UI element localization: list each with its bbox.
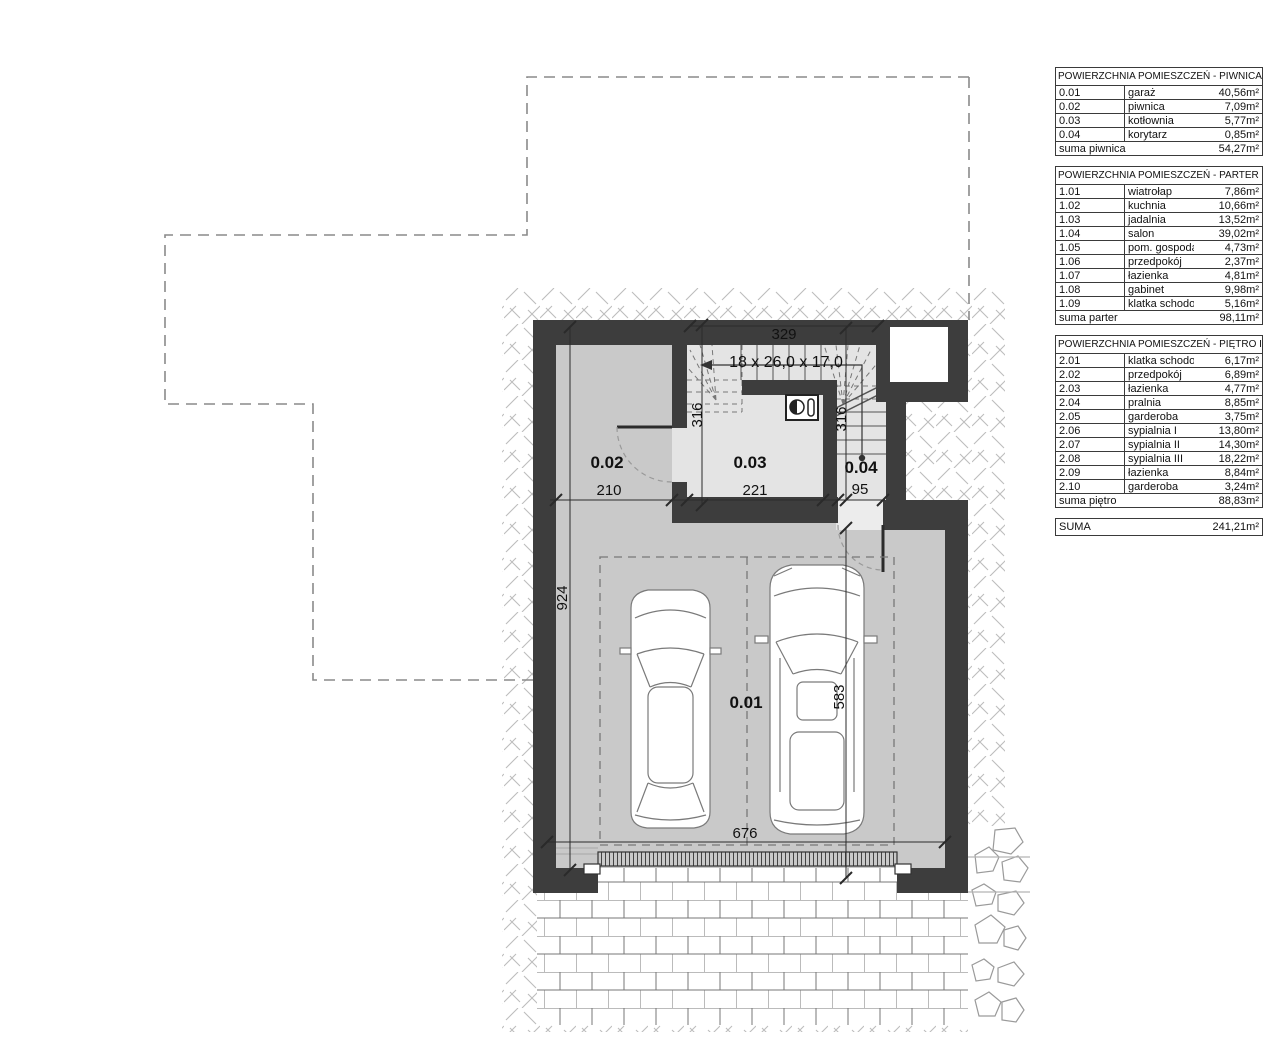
room-number: 2.09 — [1056, 466, 1125, 480]
room-name: sypialnia II — [1125, 438, 1194, 452]
room-number: 0.03 — [1056, 114, 1125, 128]
room-name: pom. gospodarcze — [1125, 241, 1194, 255]
room-number: 1.07 — [1056, 269, 1125, 283]
room-label-0-04: 0.04 — [844, 458, 878, 477]
table-footer-row: suma piwnica54,27m² — [1056, 142, 1263, 156]
area-table-pietro: POWIERZCHNIA POMIESZCZEŃ - PIĘTRO I2.01k… — [1055, 335, 1263, 508]
room-name: pralnia — [1125, 396, 1194, 410]
table-row: 1.08gabinet9,98m² — [1056, 283, 1263, 297]
table-row: 2.05garderoba3,75m² — [1056, 410, 1263, 424]
room-area: 5,16m² — [1194, 297, 1263, 311]
room-area: 10,66m² — [1194, 199, 1263, 213]
room-number: 1.05 — [1056, 241, 1125, 255]
dim-316-left: 316 — [689, 402, 706, 427]
room-area: 9,98m² — [1194, 283, 1263, 297]
room-name: sypialnia I — [1125, 424, 1194, 438]
room-area: 3,75m² — [1194, 410, 1263, 424]
dim-95: 95 — [852, 481, 869, 498]
table-header-row: POWIERZCHNIA POMIESZCZEŃ - PARTER — [1056, 167, 1263, 185]
table-row: 2.08sypialnia III18,22m² — [1056, 452, 1263, 466]
room-number: 1.01 — [1056, 185, 1125, 199]
room-area: 4,81m² — [1194, 269, 1263, 283]
window-shaft — [890, 327, 948, 382]
room-number: 2.03 — [1056, 382, 1125, 396]
room-area: 0,85m² — [1194, 128, 1263, 142]
area-table-piwnica: POWIERZCHNIA POMIESZCZEŃ - PIWNICA0.01ga… — [1055, 67, 1263, 156]
area-table-parter: POWIERZCHNIA POMIESZCZEŃ - PARTER1.01wia… — [1055, 166, 1263, 325]
table-row: 0.01garaż40,56m² — [1056, 86, 1263, 100]
dim-924: 924 — [554, 585, 571, 610]
table-title: POWIERZCHNIA POMIESZCZEŃ - PARTER — [1056, 167, 1263, 185]
room-area: 13,52m² — [1194, 213, 1263, 227]
room-name: salon — [1125, 227, 1194, 241]
dim-583: 583 — [831, 684, 848, 709]
room-area: 6,17m² — [1194, 354, 1263, 368]
room-name: garderoba — [1125, 480, 1194, 494]
car-suv-top-view — [755, 565, 877, 834]
table-row: 2.04pralnia8,85m² — [1056, 396, 1263, 410]
floor-plan-page: 329 18 x 26,0 x 17,0 316 316 210 221 95 … — [0, 0, 1278, 1043]
area-tables: POWIERZCHNIA POMIESZCZEŃ - PIWNICA0.01ga… — [1055, 67, 1263, 546]
room-area: 5,77m² — [1194, 114, 1263, 128]
stone-paving — [968, 826, 1030, 1032]
room-number: 0.01 — [1056, 86, 1125, 100]
table-row: 0.02piwnica7,09m² — [1056, 100, 1263, 114]
room-area: 4,73m² — [1194, 241, 1263, 255]
table-title: POWIERZCHNIA POMIESZCZEŃ - PIĘTRO I — [1056, 336, 1263, 354]
table-footer-row: suma parter98,11m² — [1056, 311, 1263, 325]
dim-210: 210 — [596, 482, 621, 499]
room-area: 8,84m² — [1194, 466, 1263, 480]
room-name: piwnica — [1125, 100, 1194, 114]
room-name: jadalnia — [1125, 213, 1194, 227]
room-name: przedpokój — [1125, 368, 1194, 382]
room-number: 2.07 — [1056, 438, 1125, 452]
table-row: 2.07sypialnia II14,30m² — [1056, 438, 1263, 452]
room-area: 18,22m² — [1194, 452, 1263, 466]
table-row: SUMA 241,21m² — [1056, 519, 1263, 536]
room-number: 2.04 — [1056, 396, 1125, 410]
room-number: 2.05 — [1056, 410, 1125, 424]
table-header-row: POWIERZCHNIA POMIESZCZEŃ - PIWNICA — [1056, 68, 1263, 86]
room-number: 1.08 — [1056, 283, 1125, 297]
room-number: 2.08 — [1056, 452, 1125, 466]
room-area: 39,02m² — [1194, 227, 1263, 241]
room-area: 13,80m² — [1194, 424, 1263, 438]
room-name: sypialnia III — [1125, 452, 1194, 466]
table-row: 2.06sypialnia I13,80m² — [1056, 424, 1263, 438]
room-number: 0.04 — [1056, 128, 1125, 142]
table-row: 1.04salon39,02m² — [1056, 227, 1263, 241]
room-name: łazienka — [1125, 382, 1194, 396]
sum-label: suma piwnica — [1056, 142, 1194, 156]
room-label-0-02: 0.02 — [590, 453, 623, 472]
room-area: 7,09m² — [1194, 100, 1263, 114]
room-number: 1.06 — [1056, 255, 1125, 269]
table-footer-row: suma piętro88,83m² — [1056, 494, 1263, 508]
room-area: 14,30m² — [1194, 438, 1263, 452]
room-number: 2.06 — [1056, 424, 1125, 438]
car-sedan-top-view — [620, 590, 721, 828]
sum-label: suma piętro — [1056, 494, 1194, 508]
table-row: 1.01wiatrołap7,86m² — [1056, 185, 1263, 199]
room-area: 7,86m² — [1194, 185, 1263, 199]
room-name: gabinet — [1125, 283, 1194, 297]
stair-spec-label: 18 x 26,0 x 17,0 — [729, 354, 843, 371]
room-name: klatka schodowa — [1125, 354, 1194, 368]
room-area: 2,37m² — [1194, 255, 1263, 269]
table-row: 1.03jadalnia13,52m² — [1056, 213, 1263, 227]
room-number: 1.03 — [1056, 213, 1125, 227]
table-header-row: POWIERZCHNIA POMIESZCZEŃ - PIĘTRO I — [1056, 336, 1263, 354]
room-name: klatka schodowa — [1125, 297, 1194, 311]
room-area: 6,89m² — [1194, 368, 1263, 382]
dim-221: 221 — [742, 482, 767, 499]
table-title: POWIERZCHNIA POMIESZCZEŃ - PIWNICA — [1056, 68, 1263, 86]
table-row: 2.10garderoba3,24m² — [1056, 480, 1263, 494]
table-row: 2.02przedpokój6,89m² — [1056, 368, 1263, 382]
room-number: 0.02 — [1056, 100, 1125, 114]
room-name: garderoba — [1125, 410, 1194, 424]
room-number: 2.10 — [1056, 480, 1125, 494]
room-name: garaż — [1125, 86, 1194, 100]
room-name: wiatrołap — [1125, 185, 1194, 199]
boiler-icon — [786, 395, 818, 420]
room-label-0-03: 0.03 — [733, 453, 766, 472]
table-row: 2.03łazienka4,77m² — [1056, 382, 1263, 396]
room-name: korytarz — [1125, 128, 1194, 142]
table-row: 1.02kuchnia10,66m² — [1056, 199, 1263, 213]
room-area: 4,77m² — [1194, 382, 1263, 396]
room-name: przedpokój — [1125, 255, 1194, 269]
floor-plan-drawing: 329 18 x 26,0 x 17,0 316 316 210 221 95 … — [0, 0, 1050, 1043]
table-row: 2.01klatka schodowa6,17m² — [1056, 354, 1263, 368]
sum-value: 98,11m² — [1194, 311, 1263, 325]
room-number: 1.09 — [1056, 297, 1125, 311]
room-number: 2.02 — [1056, 368, 1125, 382]
table-row: 1.05pom. gospodarcze4,73m² — [1056, 241, 1263, 255]
room-number: 1.02 — [1056, 199, 1125, 213]
total-value: 241,21m² — [1198, 519, 1263, 536]
room-name: kuchnia — [1125, 199, 1194, 213]
dim-316-right: 316 — [833, 406, 850, 431]
door-opening-0-02 — [672, 428, 687, 482]
room-area: 3,24m² — [1194, 480, 1263, 494]
sum-value: 88,83m² — [1194, 494, 1263, 508]
table-row: 0.04korytarz0,85m² — [1056, 128, 1263, 142]
room-area: 40,56m² — [1194, 86, 1263, 100]
room-name: kotłownia — [1125, 114, 1194, 128]
table-row: 1.09klatka schodowa5,16m² — [1056, 297, 1263, 311]
total-label: SUMA — [1056, 519, 1199, 536]
dim-676: 676 — [732, 825, 757, 842]
room-label-0-01: 0.01 — [729, 693, 762, 712]
room-number: 2.01 — [1056, 354, 1125, 368]
room-name: łazienka — [1125, 466, 1194, 480]
sum-value: 54,27m² — [1194, 142, 1263, 156]
table-row: 2.09łazienka8,84m² — [1056, 466, 1263, 480]
sum-label: suma parter — [1056, 311, 1194, 325]
room-number: 1.04 — [1056, 227, 1125, 241]
table-row: 1.06przedpokój2,37m² — [1056, 255, 1263, 269]
total-area-table: SUMA 241,21m² — [1055, 518, 1263, 536]
area-tables-root: POWIERZCHNIA POMIESZCZEŃ - PIWNICA0.01ga… — [1055, 67, 1263, 508]
dim-329: 329 — [771, 326, 796, 343]
room-name: łazienka — [1125, 269, 1194, 283]
table-row: 1.07łazienka4,81m² — [1056, 269, 1263, 283]
table-row: 0.03kotłownia5,77m² — [1056, 114, 1263, 128]
room-area: 8,85m² — [1194, 396, 1263, 410]
